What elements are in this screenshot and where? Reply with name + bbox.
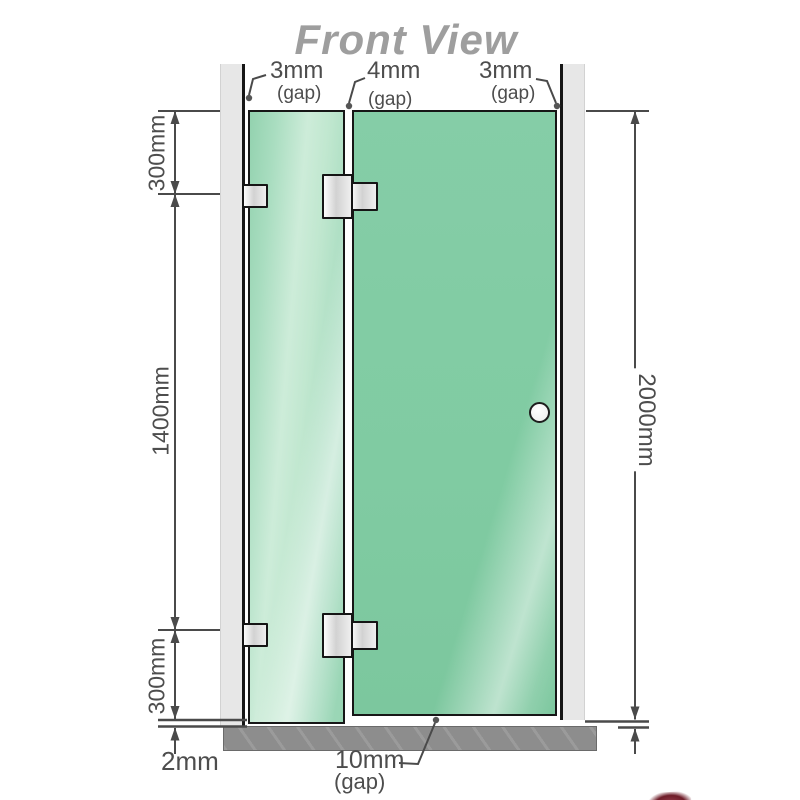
label-gap-top-left-value: 3mm xyxy=(270,59,323,83)
leader-dot-icon xyxy=(346,103,352,109)
label-left-bottom-300mm: 300mm xyxy=(146,638,169,715)
shower-screen-front-view-diagram: Front View xyxy=(0,0,800,800)
arrow-icon xyxy=(171,728,180,741)
label-left-top-300mm: 300mm xyxy=(146,115,169,192)
label-right-2000mm: 2000mm xyxy=(633,368,659,471)
leader-dot-icon xyxy=(554,103,560,109)
leader-gap-left xyxy=(249,75,266,95)
label-gap-top-right-note: (gap) xyxy=(491,84,535,103)
label-gap-top-left-note: (gap) xyxy=(277,84,321,103)
label-floor-gap-2mm: 2mm xyxy=(161,748,219,774)
arrow-icon xyxy=(171,111,180,124)
arrow-icon xyxy=(171,181,180,194)
label-left-middle-1400mm: 1400mm xyxy=(150,366,173,455)
leader-dot-icon xyxy=(246,95,252,101)
label-gap-top-middle-value: 4mm xyxy=(367,59,420,83)
label-door-bottom-gap-note: (gap) xyxy=(334,771,385,793)
arrow-icon xyxy=(171,194,180,207)
label-gap-top-right-value: 3mm xyxy=(479,59,532,83)
arrow-icon xyxy=(631,111,640,124)
leader-lines xyxy=(246,75,560,764)
arrow-icon xyxy=(171,630,180,643)
leader-gap-right xyxy=(536,79,556,103)
arrow-icon xyxy=(631,729,640,742)
arrow-icon xyxy=(631,707,640,720)
leader-dot-icon xyxy=(433,717,439,723)
logo-fragment xyxy=(649,791,691,800)
label-gap-top-middle-note: (gap) xyxy=(368,90,412,109)
arrow-icon xyxy=(171,706,180,719)
leader-gap-middle xyxy=(349,78,365,103)
dimension-annotations xyxy=(0,0,800,800)
arrow-icon xyxy=(171,617,180,630)
